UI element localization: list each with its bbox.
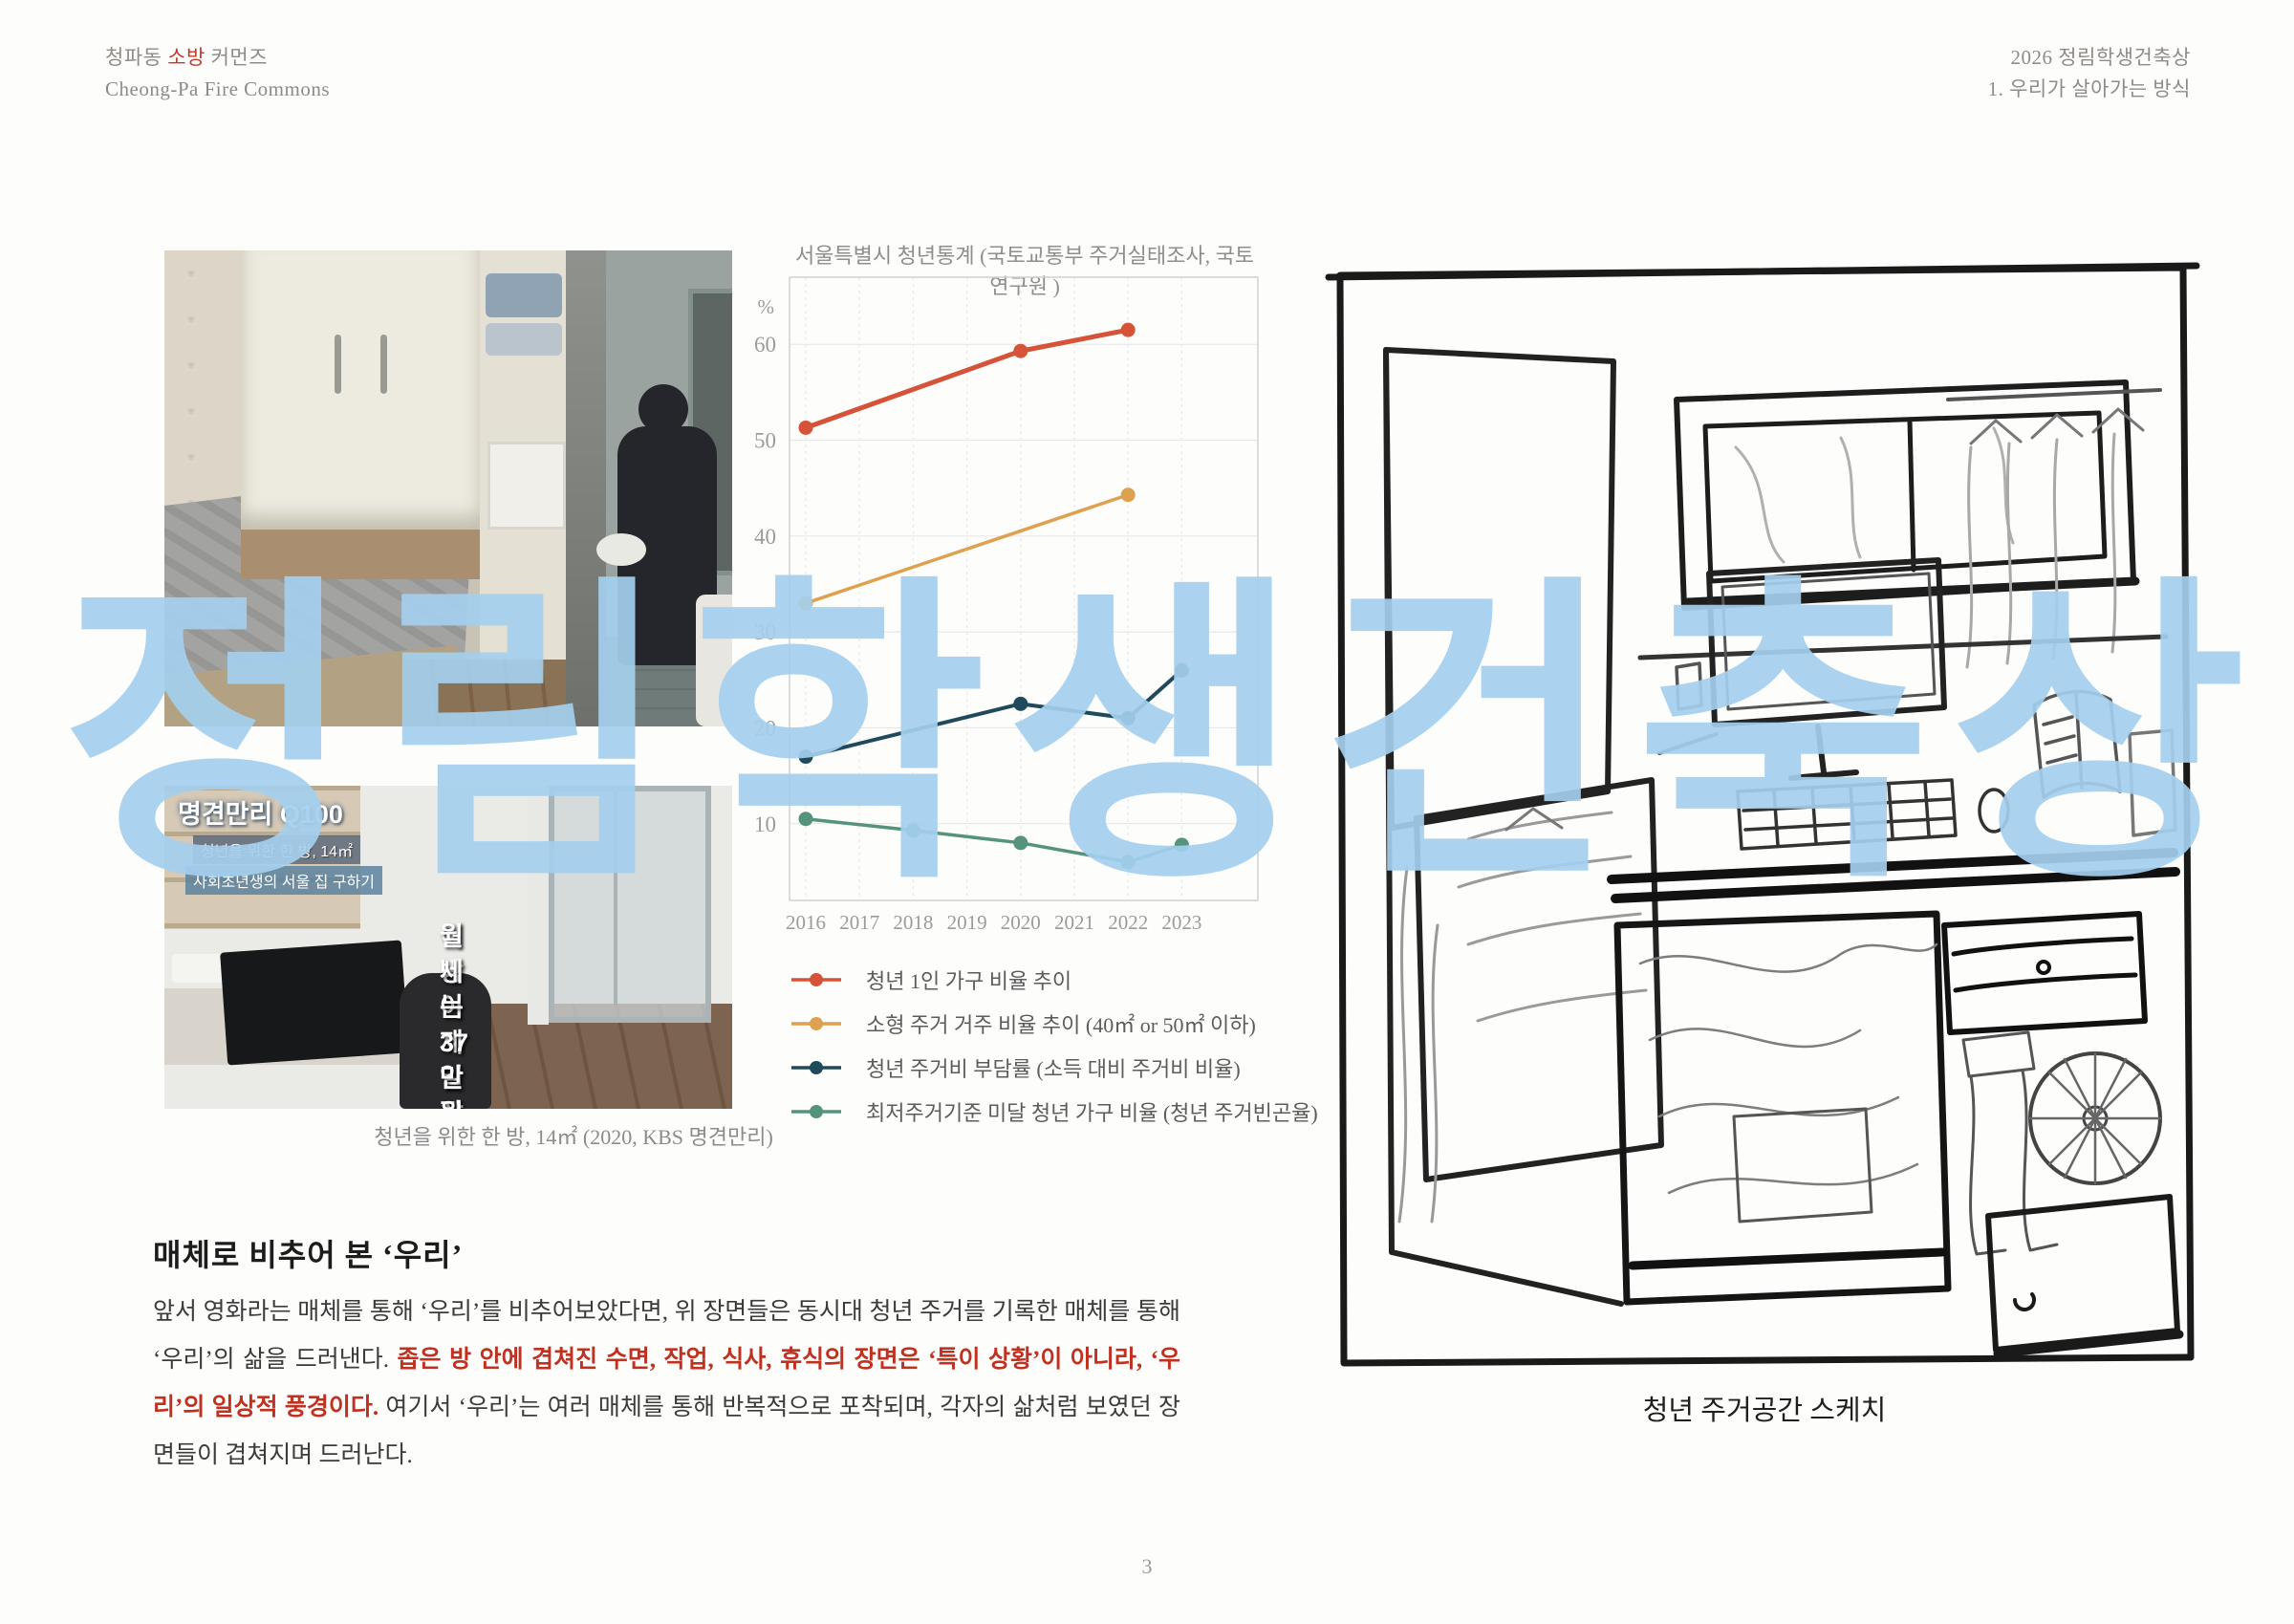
sketch-keyboard [1738,780,1956,849]
x-tick-label: 2017 [839,911,879,934]
data-point-marker [799,421,813,435]
project-title-block: 청파동 소방 커먼즈 Cheong-Pa Fire Commons [105,42,330,105]
sketch-pen [1659,734,1717,753]
room-photo-bottom: 명견만리 Q100 청년을 위한 한 방, 14㎡ 사회초년생의 서울 집 구하… [164,786,732,1109]
data-point-marker [1013,697,1028,711]
hanging-cloth [696,595,732,726]
folded-towel [486,323,562,356]
data-point-marker [1121,487,1136,502]
broadcast-topic-chip: 사회초년생의 서울 집 구하기 [185,866,382,895]
legend-marker-icon [791,1103,841,1120]
data-point-marker [1013,344,1028,358]
sketch-fan [2030,1053,2160,1183]
x-tick-label: 2020 [1001,911,1041,934]
body-paragraph: 앞서 영화라는 매체를 통해 ‘우리’를 비추어보았다면, 위 장면들은 동시대… [153,1288,1180,1480]
sketch-phone [1677,663,1701,709]
legend-label: 청년 1인 가구 비율 추이 [866,964,1071,995]
project-title-en: Cheong-Pa Fire Commons [105,74,330,105]
broadcast-logo: 명견만리 Q100 [178,793,343,831]
cabinet-underside [241,530,480,579]
photo-caption: 청년을 위한 한 방, 14㎡ (2020, KBS 명견만리) [315,1120,832,1151]
x-tick-label: 2016 [786,911,826,934]
y-tick-label: 40 [754,525,776,549]
shower-glass-seam [614,791,617,1006]
data-point-marker [1121,855,1136,869]
legend-item: 청년 주거비 부담률 (소득 대비 주거비 비율) [791,1046,1318,1090]
tv-monitor [220,941,409,1066]
wood-floor [403,660,575,726]
competition-title-block: 2026 정림학생건축상 1. 우리가 살아가는 방식 [1988,42,2191,105]
sketch-mouse [1980,790,2008,832]
legend-marker-icon [791,971,841,988]
project-title-ko: 청파동 소방 커먼즈 [105,42,330,74]
youth-housing-statistics-chart: 2016201720182019202020212022202360504030… [730,275,1266,944]
legend-marker-icon [791,1015,841,1032]
shower-glass [549,786,711,1023]
folded-towel [486,273,562,317]
project-title-accent: 소방 [167,46,206,69]
section-heading: 매체로 비추어 본 ‘우리’ [153,1231,463,1275]
sketch-caption: 청년 주거공간 스케치 [1325,1388,2204,1428]
legend-label: 최저주거기준 미달 청년 가구 비율 (청년 주거빈곤율) [866,1096,1318,1127]
legend-label: 청년 주거비 부담률 (소득 대비 주거비 비율) [866,1052,1241,1083]
y-tick-label: 30 [754,620,776,644]
data-point-marker [799,596,813,611]
bathroom-sink [596,533,646,566]
door-frame [528,786,549,1025]
x-tick-label: 2023 [1161,911,1201,934]
sketch-desk [1612,560,2175,899]
data-point-marker [1175,663,1189,678]
broadcast-episode-chip: 청년을 위한 한 방, 14㎡ [193,835,360,864]
x-tick-label: 2019 [947,911,987,934]
data-point-marker [1013,835,1028,850]
overhead-cabinet [241,250,486,530]
data-point-marker [906,823,920,837]
competition-name: 2026 정림학생건축상 [1988,42,2191,74]
y-tick-label: 50 [754,429,776,453]
x-tick-label: 2018 [893,911,933,934]
partition-wall [566,250,606,726]
room-photo-top [164,250,732,726]
page-number: 3 [0,1554,2294,1579]
data-point-marker [1121,323,1136,337]
legend-marker-icon [791,1059,841,1076]
data-point-marker [799,812,813,826]
sketch-notebook [2130,730,2175,835]
wire-basket [487,442,566,530]
sketch-jeans [1963,1032,2057,1254]
y-axis-unit-label: % [758,295,775,318]
legend-item: 청년 1인 가구 비율 추이 [791,958,1318,1002]
y-tick-label: 10 [754,812,776,836]
chapter-title: 1. 우리가 살아가는 방식 [1988,74,2191,105]
legend-item: 소형 주거 거주 비율 추이 (40㎡ or 50㎡ 이하) [791,1002,1318,1046]
legend-label: 소형 주거 거주 비율 추이 (40㎡ or 50㎡ 이하) [866,1008,1256,1039]
data-point-marker [1121,711,1136,725]
cabinet-handle [380,335,387,394]
person-head [638,384,688,434]
data-point-marker [1175,837,1189,852]
x-tick-label: 2022 [1108,911,1148,934]
cabinet-handle [335,335,341,394]
room-sketch [1325,256,2204,1384]
y-tick-label: 20 [754,716,776,740]
y-tick-label: 60 [754,333,776,357]
sketch-drawer-unit [1944,914,2145,1032]
data-point-marker [799,749,813,764]
chart-legend: 청년 1인 가구 비율 추이소형 주거 거주 비율 추이 (40㎡ or 50㎡… [791,958,1318,1134]
legend-item: 최저주거기준 미달 청년 가구 비율 (청년 주거빈곤율) [791,1090,1318,1134]
sketch-open-book [2034,692,2120,797]
sketch-door [1988,1197,2179,1353]
sketch-bed [1617,914,1948,1302]
x-tick-label: 2021 [1054,911,1094,934]
